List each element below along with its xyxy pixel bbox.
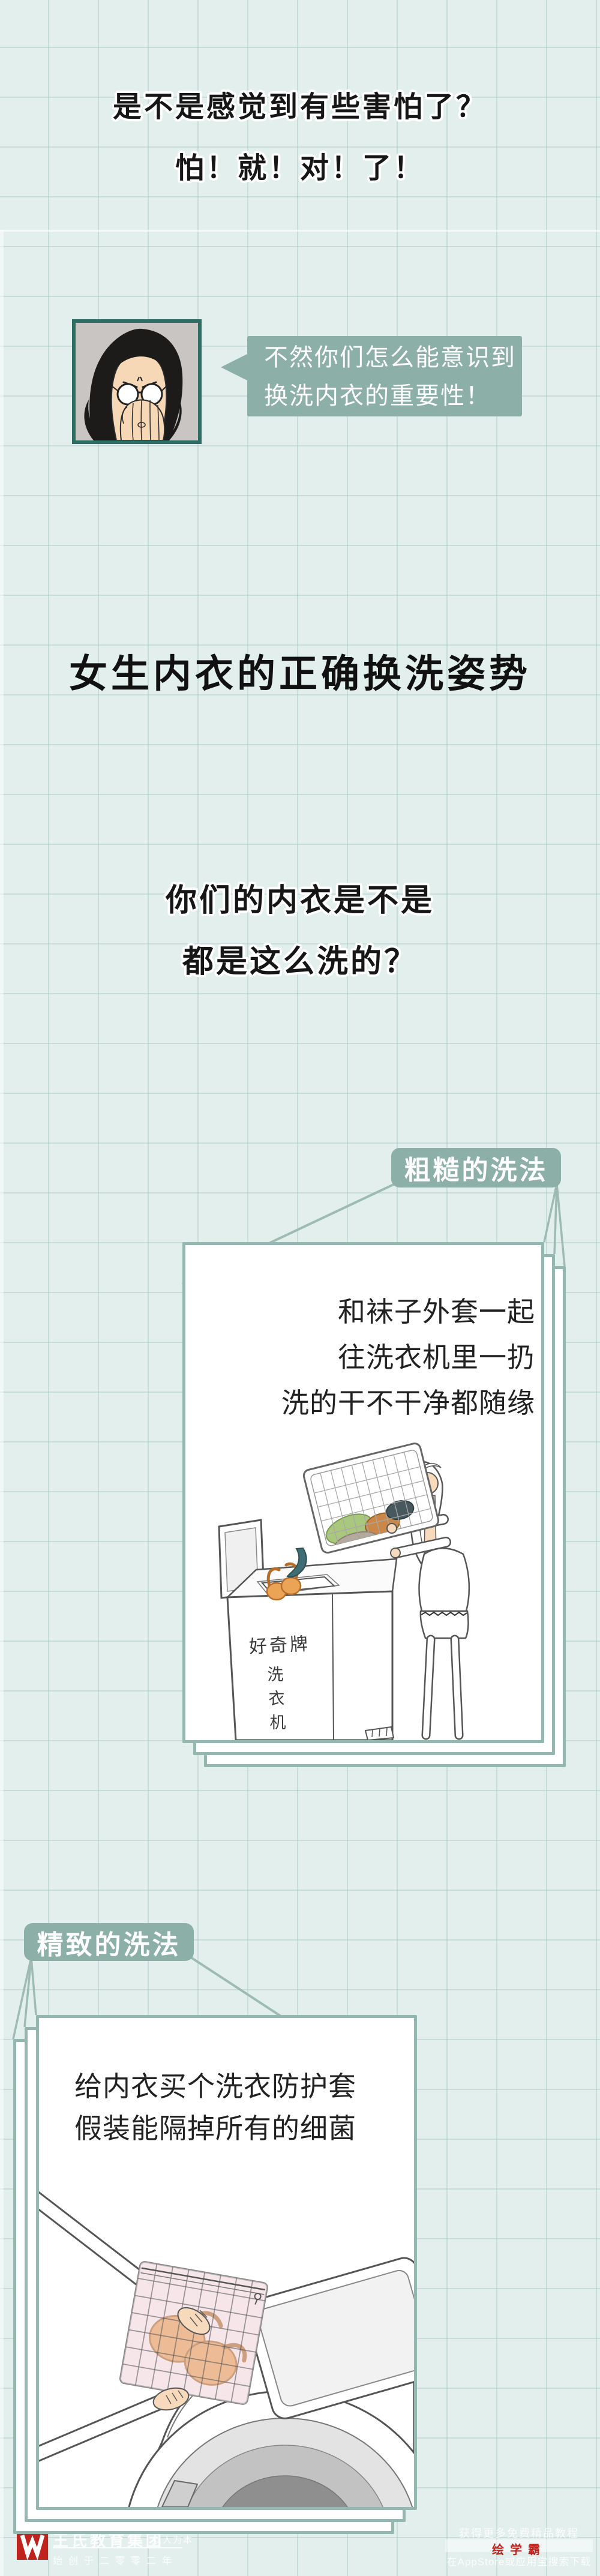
footer-divider: [53, 2547, 182, 2548]
rough-line-1: 和袜子外套一起: [252, 1289, 535, 1335]
woman-hand-2: [391, 1548, 400, 1558]
rough-line-3: 洗的干不干净都随缘: [252, 1380, 535, 1426]
fine-line-1: 给内衣买个洗衣防护套: [74, 2065, 410, 2107]
woman-hand-1: [387, 1524, 397, 1533]
rough-method-tag: 粗糙的洗法: [391, 1148, 561, 1187]
washing-machine-body: 好奇牌 洗 衣 机: [227, 1591, 394, 1740]
fine-line-2: 假装能隔掉所有的细菌: [74, 2107, 410, 2149]
footer-org-since: 始创于二零零二年: [53, 2553, 178, 2567]
rough-line-2: 往洗衣机里一扔: [252, 1335, 535, 1380]
rough-method-tag-label: 粗糙的洗法: [404, 1148, 548, 1187]
narrator-avatar: [72, 319, 202, 444]
question-line-1: 你们的内衣是不是: [0, 875, 600, 920]
intro-line-2: 怕！就！对！了！: [0, 144, 600, 186]
image-seam-horizontal: [0, 230, 600, 232]
intro-line-1: 是不是感觉到有些害怕了？: [0, 83, 600, 125]
machine-label-char-2: 衣: [269, 1690, 285, 1708]
speech-bubble: 不然你们怎么能意识到 换洗内衣的重要性！: [247, 336, 522, 416]
page-title: 女生内衣的正确换洗姿势: [0, 643, 600, 698]
fine-method-tag-label: 精致的洗法: [37, 1923, 181, 1962]
fine-method-tag: 精致的洗法: [24, 1923, 194, 1961]
narrator-avatar-drawing: [76, 323, 198, 440]
bubble-line-2: 换洗内衣的重要性！: [264, 377, 522, 415]
speech-bubble-tail: [221, 353, 248, 381]
image-seam-vertical: [0, 230, 4, 2576]
footer-promo-text: 获得更多免费精品教程: [445, 2525, 593, 2541]
machine-label-char-1: 洗: [268, 1666, 284, 1684]
question-line-2: 都是这么洗的？: [0, 936, 600, 981]
fine-panel-text: 给内衣买个洗衣防护套 假装能隔掉所有的细菌: [74, 2065, 410, 2149]
bubble-line-1: 不然你们怎么能意识到: [264, 338, 522, 377]
footer-download-text: 在AppStore或应用宝搜索下载: [439, 2553, 599, 2568]
footer-org-slogan: 以人为本: [152, 2533, 193, 2546]
fine-wash-illustration: [39, 2160, 414, 2507]
rough-panel-text: 和袜子外套一起 往洗衣机里一扔 洗的干不干净都随缘: [252, 1289, 535, 1426]
rough-wash-illustration: 好奇牌 洗 衣 机: [185, 1428, 541, 1740]
machine-label-char-3: 机: [270, 1714, 286, 1732]
machine-brand-label: 好奇牌: [248, 1634, 311, 1657]
comic-page: 是不是感觉到有些害怕了？ 怕！就！对！了！: [0, 0, 600, 2576]
woman-lower-body: [421, 1611, 469, 1735]
woman-torso: [419, 1548, 469, 1611]
